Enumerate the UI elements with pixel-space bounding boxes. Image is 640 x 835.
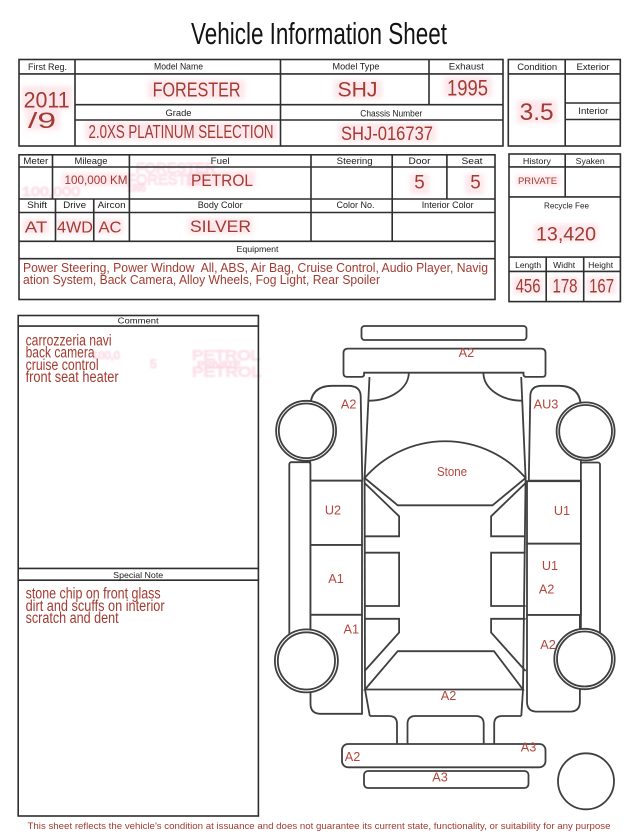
svg-text:scratch and dent: scratch and dent xyxy=(26,610,120,627)
svg-text:Height: Height xyxy=(588,261,614,270)
svg-text:100,000 KM: 100,000 KM xyxy=(65,175,128,187)
svg-text:Meter: Meter xyxy=(23,156,48,167)
svg-text:History: History xyxy=(523,157,552,166)
svg-text:This sheet reflects the vehicl: This sheet reflects the vehicle's condit… xyxy=(28,821,611,831)
svg-text:First Reg.: First Reg. xyxy=(28,62,67,73)
svg-text:A3: A3 xyxy=(432,771,448,785)
svg-text:Interior Color: Interior Color xyxy=(422,200,474,211)
svg-text:Aircon: Aircon xyxy=(98,200,126,211)
svg-text:Model Name: Model Name xyxy=(154,62,203,73)
svg-text:A2: A2 xyxy=(459,346,475,360)
svg-text:Body Color: Body Color xyxy=(198,200,243,211)
svg-text:Model Type: Model Type xyxy=(333,62,380,73)
svg-text:A3: A3 xyxy=(521,741,537,755)
svg-text:A2: A2 xyxy=(539,583,555,597)
svg-text:Syaken: Syaken xyxy=(576,157,605,166)
svg-text:front seat heater: front seat heater xyxy=(26,369,119,386)
svg-text:SHJ: SHJ xyxy=(338,79,378,102)
svg-text:2.0XS PLATINUM SELECTION: 2.0XS PLATINUM SELECTION xyxy=(89,122,274,142)
svg-text:A1: A1 xyxy=(344,623,360,637)
svg-text:13,420: 13,420 xyxy=(536,223,596,245)
svg-text:Vehicle Information Sheet: Vehicle Information Sheet xyxy=(191,16,447,51)
svg-text:1995: 1995 xyxy=(447,76,488,101)
svg-text:U2: U2 xyxy=(325,504,341,518)
svg-text:U1: U1 xyxy=(554,504,570,518)
svg-text:PETROL: PETROL xyxy=(192,364,261,380)
svg-text:ation System, Back Camera, All: ation System, Back Camera, Alloy Wheels,… xyxy=(23,272,381,287)
svg-text:SILVER: SILVER xyxy=(190,217,251,236)
svg-text:Widht: Widht xyxy=(553,261,576,270)
svg-text:Color No.: Color No. xyxy=(337,200,375,211)
svg-text:Door: Door xyxy=(409,156,431,167)
svg-text:Interior: Interior xyxy=(578,106,608,117)
svg-text:Mileage: Mileage xyxy=(75,156,108,167)
svg-text:Exterior: Exterior xyxy=(577,62,610,73)
svg-text:167: 167 xyxy=(589,276,614,298)
svg-text:5: 5 xyxy=(470,172,481,194)
svg-text:Fuel: Fuel xyxy=(211,156,230,167)
svg-text:A2: A2 xyxy=(540,638,556,652)
svg-text:Steering: Steering xyxy=(337,156,373,167)
svg-text:PRIVATE: PRIVATE xyxy=(518,176,557,186)
svg-text:3.5: 3.5 xyxy=(520,99,554,126)
svg-text:FORESTER: FORESTER xyxy=(153,79,241,102)
svg-text:U1: U1 xyxy=(542,559,558,573)
svg-text:Recycle Fee: Recycle Fee xyxy=(544,202,589,211)
svg-text:Chassis Number: Chassis Number xyxy=(360,109,422,120)
svg-text:SHJ-016737: SHJ-016737 xyxy=(341,124,433,145)
svg-text:Condition: Condition xyxy=(517,62,557,73)
svg-text:178: 178 xyxy=(553,276,578,298)
svg-text:Shift: Shift xyxy=(27,200,47,211)
svg-text:Drive: Drive xyxy=(63,200,86,211)
svg-text:AC: AC xyxy=(99,220,122,237)
svg-text:Seat: Seat xyxy=(462,156,483,167)
svg-text:Exhaust: Exhaust xyxy=(449,62,484,73)
svg-text:5: 5 xyxy=(150,357,157,371)
svg-text:Length: Length xyxy=(515,261,541,270)
svg-text:456: 456 xyxy=(516,276,541,298)
svg-text:Grade: Grade xyxy=(166,108,192,119)
svg-text:A2: A2 xyxy=(441,689,457,703)
svg-text:A2: A2 xyxy=(341,398,357,412)
svg-text:A1: A1 xyxy=(328,572,344,586)
svg-text:Equipment: Equipment xyxy=(237,245,280,254)
svg-text:5: 5 xyxy=(414,172,425,194)
svg-text:AU3: AU3 xyxy=(534,398,559,412)
svg-text:A2: A2 xyxy=(345,750,361,764)
svg-text:PETROL: PETROL xyxy=(191,171,253,190)
svg-text:Comment: Comment xyxy=(118,317,160,326)
svg-text:/9: /9 xyxy=(28,108,56,133)
svg-text:4WD: 4WD xyxy=(57,220,93,237)
svg-text:Stone: Stone xyxy=(437,465,467,479)
svg-text:AT: AT xyxy=(25,220,48,237)
svg-text:Special Note: Special Note xyxy=(113,571,163,580)
